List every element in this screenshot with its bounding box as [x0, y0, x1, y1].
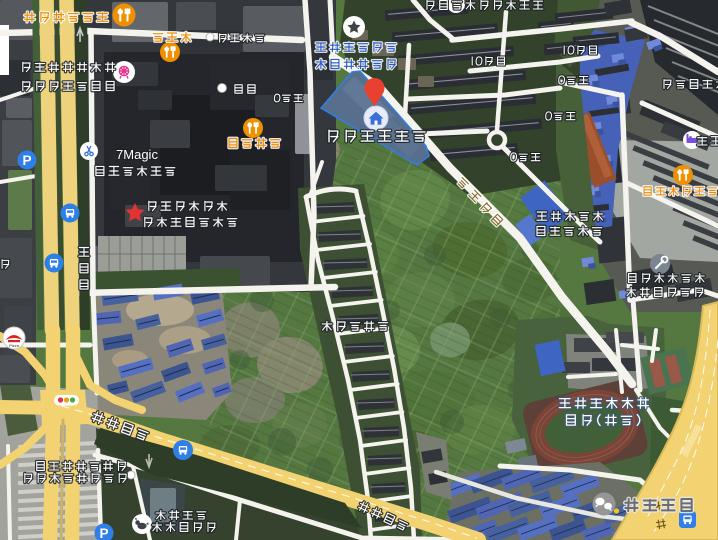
svg-text:P: P	[99, 526, 108, 540]
svg-text:P: P	[22, 153, 31, 168]
svg-text:7Magic: 7Magic	[116, 147, 158, 162]
svg-text:Pizza: Pizza	[9, 343, 20, 348]
